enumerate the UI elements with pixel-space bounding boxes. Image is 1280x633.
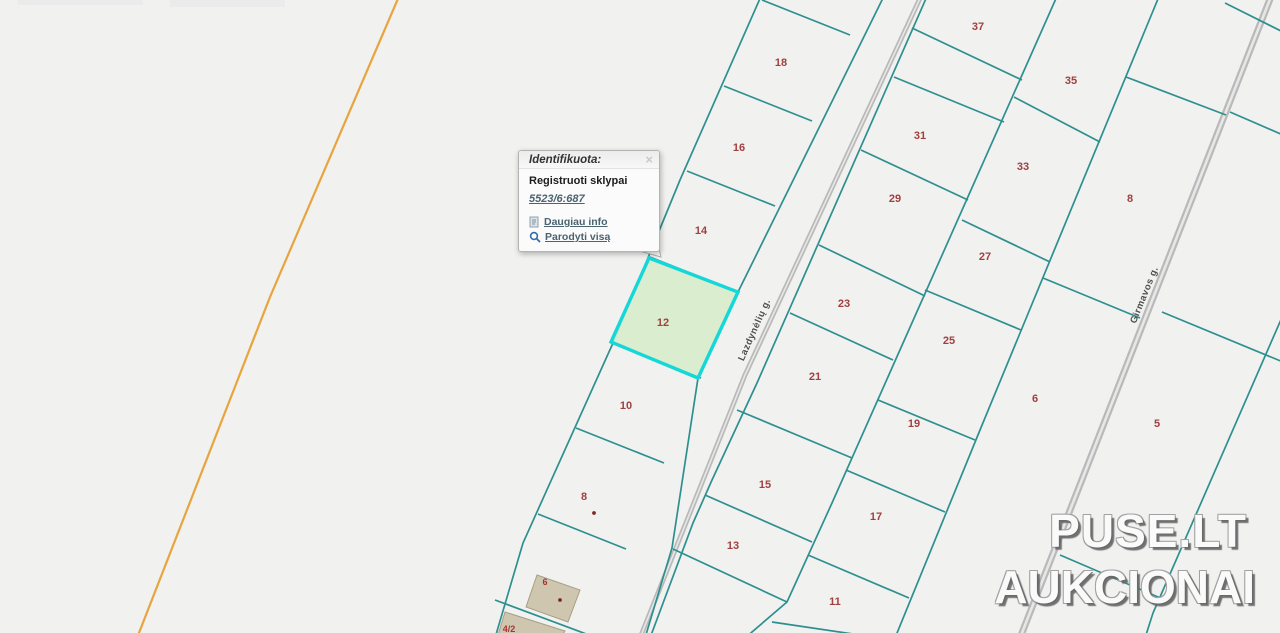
parcel-label: 15	[759, 479, 771, 491]
parcel-label: 31	[914, 130, 926, 142]
parcel-label: 8	[581, 491, 587, 503]
parcel-label: 14	[695, 225, 708, 237]
parcel-label: 6	[542, 577, 547, 587]
zoom-icon	[529, 231, 541, 243]
popup-subtitle: Registruoti sklypai	[529, 175, 649, 187]
popup-body: Registruoti sklypai 5523/6:687 Daugiau i…	[519, 169, 659, 251]
show-all-row: Parodyti visą	[529, 231, 649, 243]
highlighted-parcel-12[interactable]	[611, 258, 738, 378]
street-labels: Lazdynėlių g.Girmavos g.	[736, 265, 1161, 363]
parcel-label: 4/2	[503, 624, 516, 633]
parcel-label: 21	[809, 371, 821, 383]
watermark-line1: PUSE.LT	[1049, 504, 1247, 558]
point-marker	[558, 598, 562, 602]
close-icon[interactable]: ×	[645, 155, 653, 165]
cadastral-number-link[interactable]: 5523/6:687	[529, 193, 585, 205]
parcel-label: 6	[1032, 393, 1038, 405]
popup-title: Identifikuota:	[529, 154, 601, 166]
parcel-label: 13	[727, 540, 739, 552]
orange-boundary-line	[137, 0, 400, 633]
parcel-label: 12	[657, 317, 669, 329]
parcel-label: 19	[908, 418, 920, 430]
map-viewport[interactable]: 3735313329827232521619515171311181614108…	[0, 0, 1280, 633]
parcel-label: 35	[1065, 75, 1077, 87]
parcel-label: 16	[733, 142, 745, 154]
parcel-label: 23	[838, 298, 850, 310]
show-all-link[interactable]: Parodyti visą	[545, 231, 610, 243]
more-info-link[interactable]: Daugiau info	[544, 216, 608, 228]
parcel-label: 29	[889, 193, 901, 205]
identify-popup: Identifikuota: × Registruoti sklypai 552…	[518, 150, 660, 252]
parcel-label: 8	[1127, 193, 1133, 205]
buildings	[497, 511, 596, 633]
parcel-label: 33	[1017, 161, 1029, 173]
parcel-label: 27	[979, 251, 991, 263]
parcel-label: 37	[972, 21, 984, 33]
parcel-label: 25	[943, 335, 955, 347]
document-icon	[529, 216, 540, 228]
parcel-label: 11	[829, 596, 841, 608]
parcel-label: 5	[1154, 418, 1160, 430]
point-marker	[592, 511, 596, 515]
parcel-label: 18	[775, 57, 787, 69]
watermark-line2: AUKCIONAI	[994, 560, 1255, 614]
more-info-row: Daugiau info	[529, 216, 649, 228]
parcel-label: 17	[870, 511, 882, 523]
popup-header: Identifikuota: ×	[519, 151, 659, 169]
parcel-label: 10	[620, 400, 632, 412]
